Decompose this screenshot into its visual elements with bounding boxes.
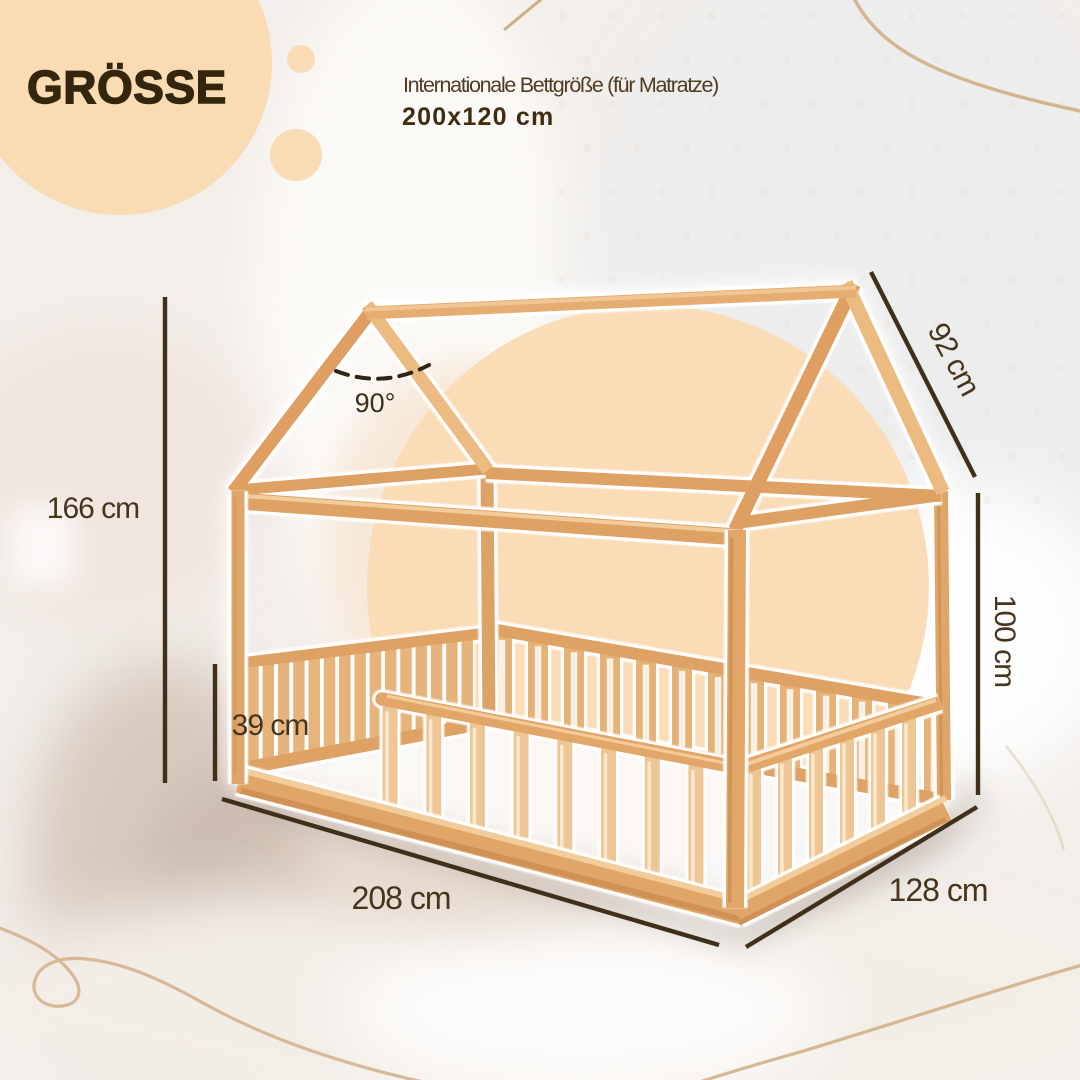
svg-text:208 cm: 208 cm <box>352 880 451 916</box>
svg-text:90°: 90° <box>355 388 396 418</box>
svg-text:Internationale Bettgröße (für: Internationale Bettgröße (für Matratze) <box>403 73 718 97</box>
svg-text:200x120 cm: 200x120 cm <box>402 103 554 131</box>
svg-text:39 cm: 39 cm <box>232 709 309 742</box>
svg-text:166 cm: 166 cm <box>47 492 139 525</box>
svg-text:100 cm: 100 cm <box>988 595 1021 687</box>
svg-text:128 cm: 128 cm <box>889 872 988 908</box>
svg-text:GRÖSSE: GRÖSSE <box>27 61 227 113</box>
